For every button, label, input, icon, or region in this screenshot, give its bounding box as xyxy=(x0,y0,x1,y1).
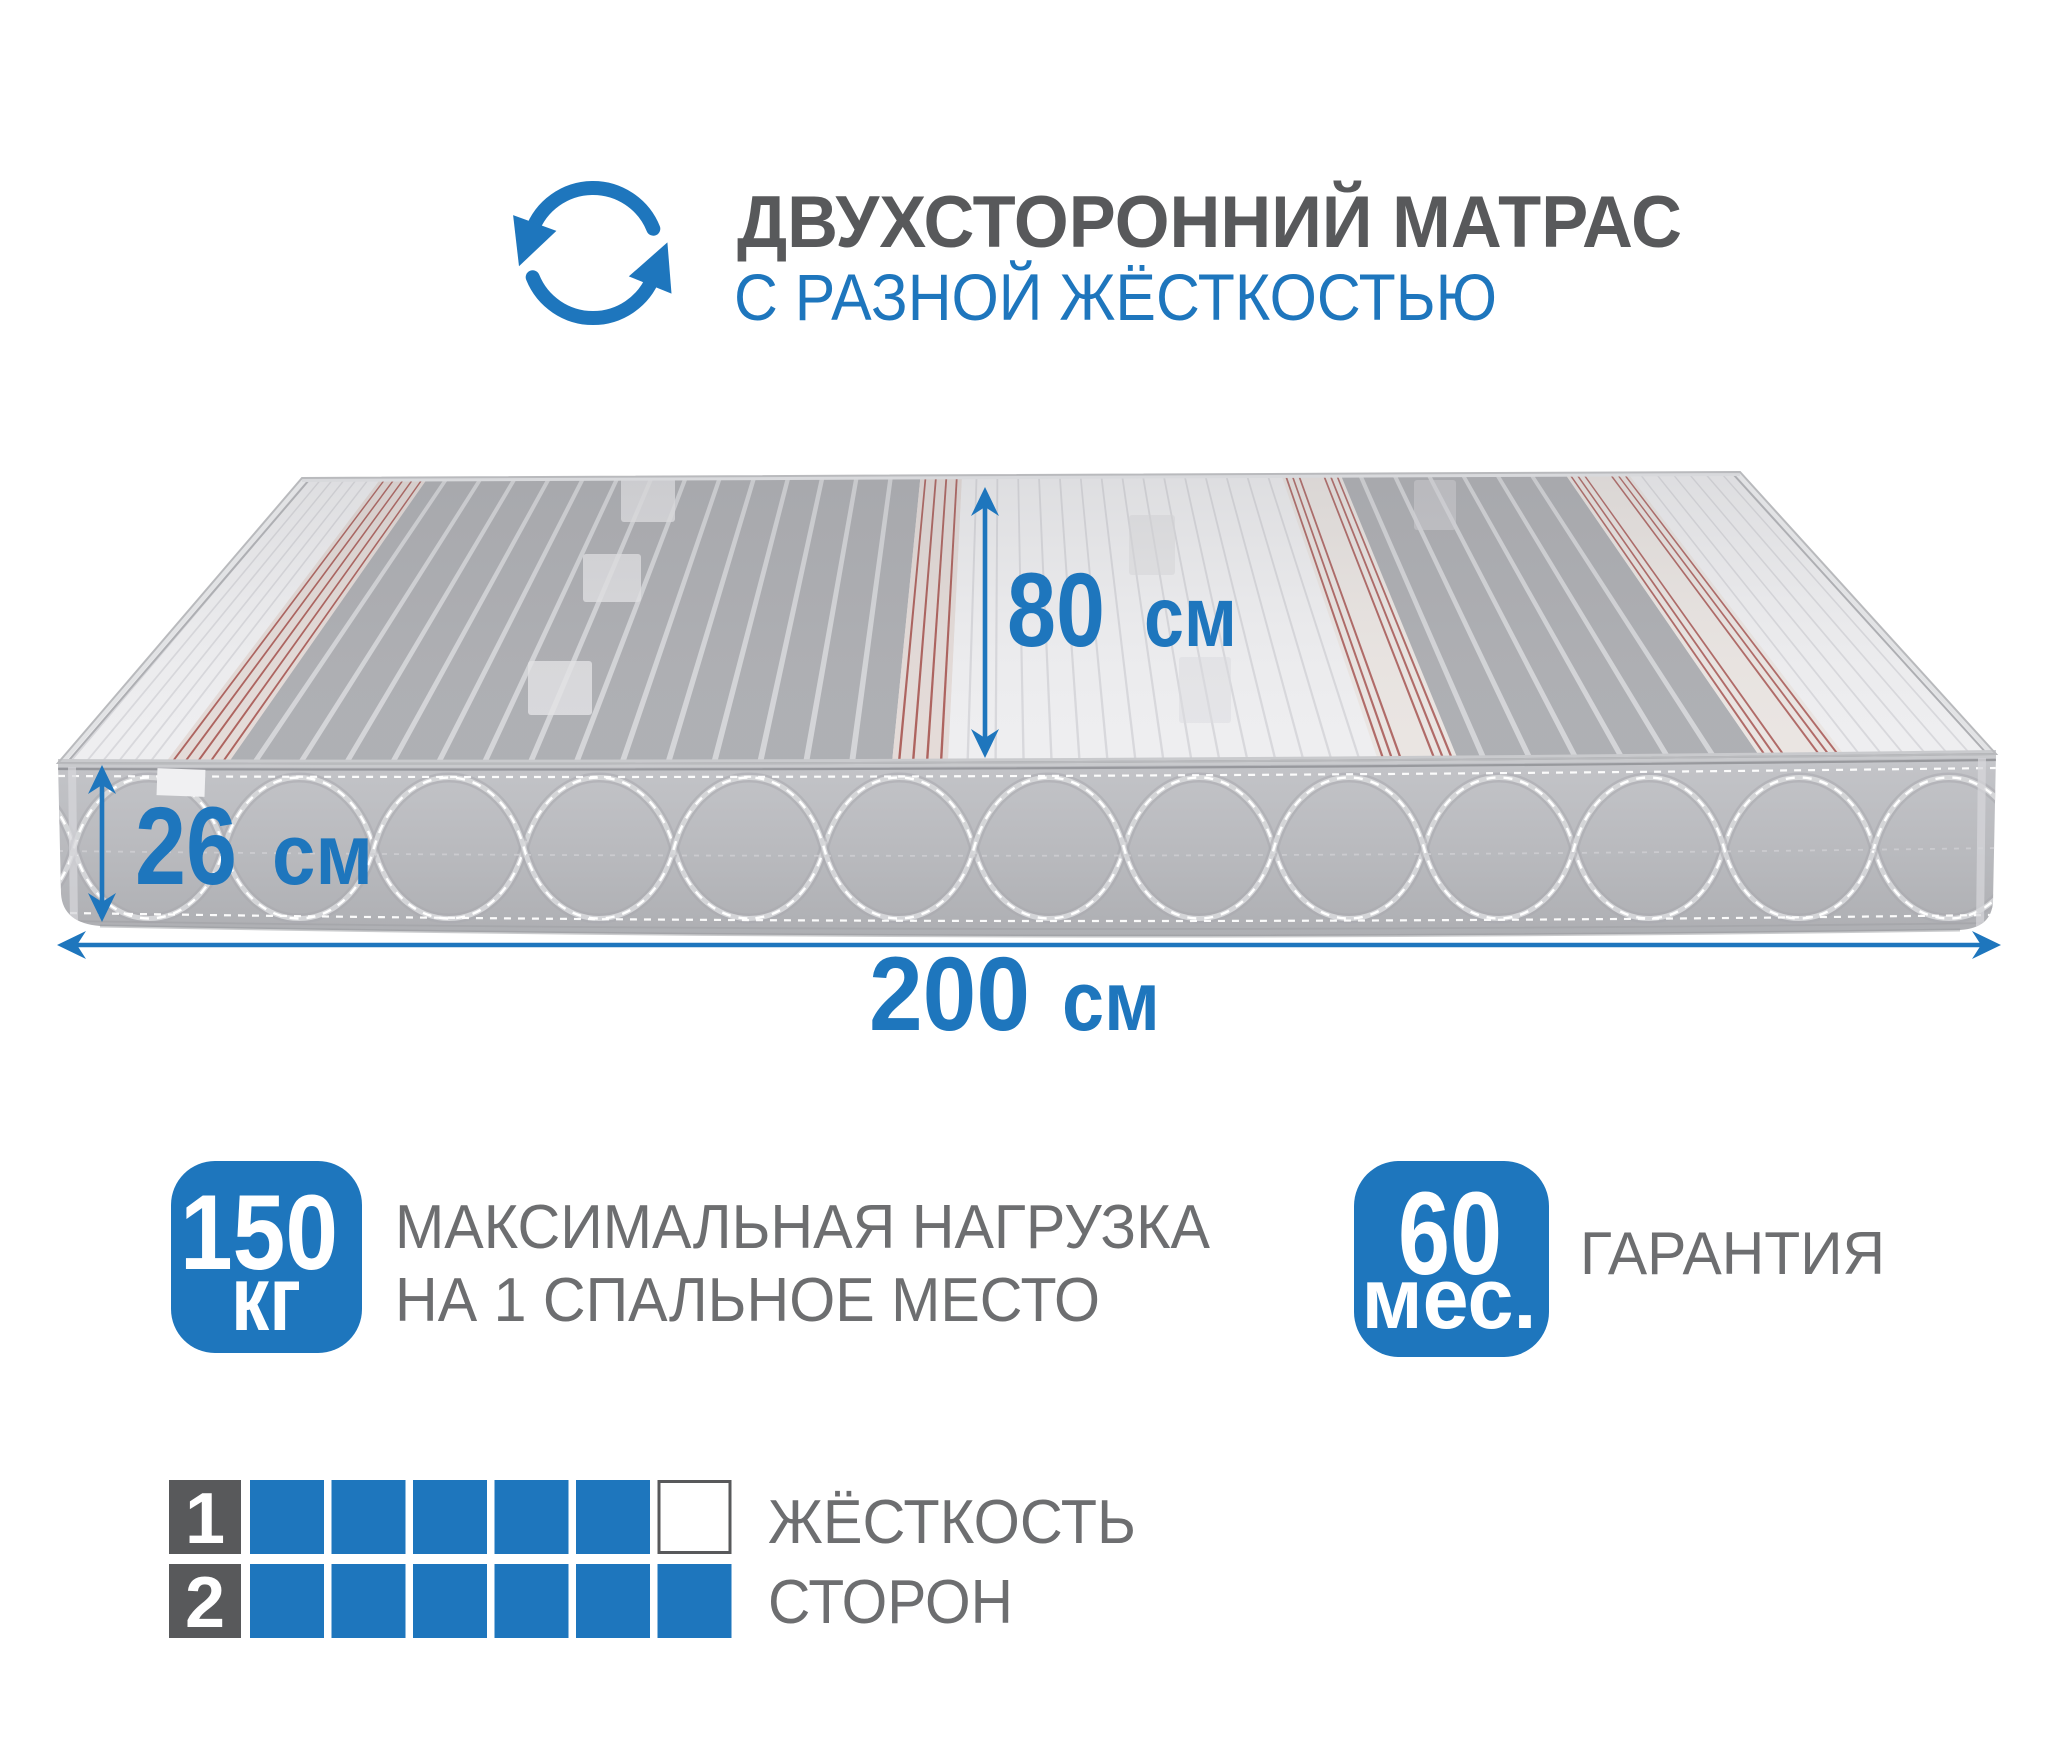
svg-text:ГАРАНТИЯ: ГАРАНТИЯ xyxy=(1580,1220,1885,1287)
svg-text:см: см xyxy=(272,807,373,903)
svg-text:СТОРОН: СТОРОН xyxy=(768,1568,1013,1637)
svg-text:мес.: мес. xyxy=(1362,1251,1537,1347)
svg-text:200: 200 xyxy=(869,936,1030,1053)
svg-text:см: см xyxy=(1062,954,1160,1048)
svg-text:НА 1 СПАЛЬНОЕ МЕСТО: НА 1 СПАЛЬНОЕ МЕСТО xyxy=(395,1266,1100,1335)
svg-text:С РАЗНОЙ ЖЁСТКОСТЬЮ: С РАЗНОЙ ЖЁСТКОСТЬЮ xyxy=(734,259,1497,334)
svg-text:ЖЁСТКОСТЬ: ЖЁСТКОСТЬ xyxy=(768,1488,1136,1557)
svg-text:1: 1 xyxy=(185,1479,225,1559)
svg-text:ДВУХСТОРОННИЙ МАТРАС: ДВУХСТОРОННИЙ МАТРАС xyxy=(737,181,1682,263)
svg-text:см: см xyxy=(1144,570,1237,665)
svg-text:МАКСИМАЛЬНАЯ НАГРУЗКА: МАКСИМАЛЬНАЯ НАГРУЗКА xyxy=(395,1193,1211,1262)
svg-text:2: 2 xyxy=(185,1563,225,1643)
svg-text:кг: кг xyxy=(231,1248,301,1350)
svg-text:26: 26 xyxy=(135,785,237,908)
svg-text:80: 80 xyxy=(1007,552,1105,669)
